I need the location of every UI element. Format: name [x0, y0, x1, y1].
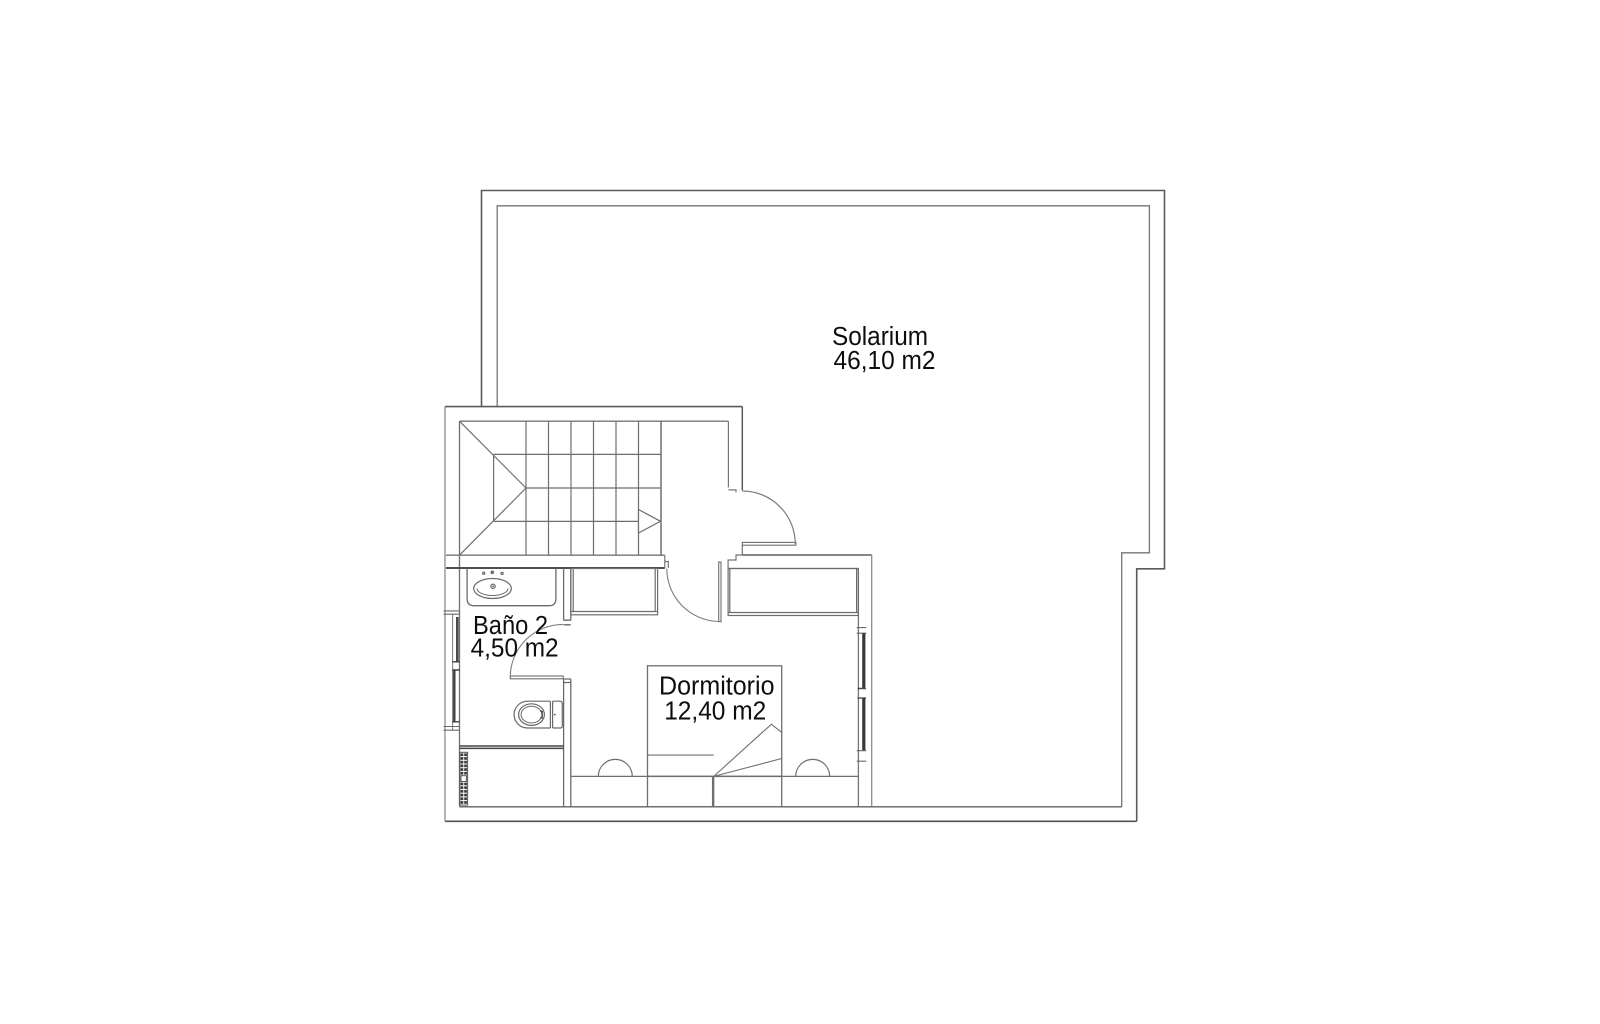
svg-text:46,10 m2: 46,10 m2: [834, 347, 936, 375]
svg-text:12,40 m2: 12,40 m2: [664, 697, 766, 725]
svg-text:Dormitorio: Dormitorio: [659, 673, 775, 701]
svg-text:4,50 m2: 4,50 m2: [471, 634, 559, 662]
